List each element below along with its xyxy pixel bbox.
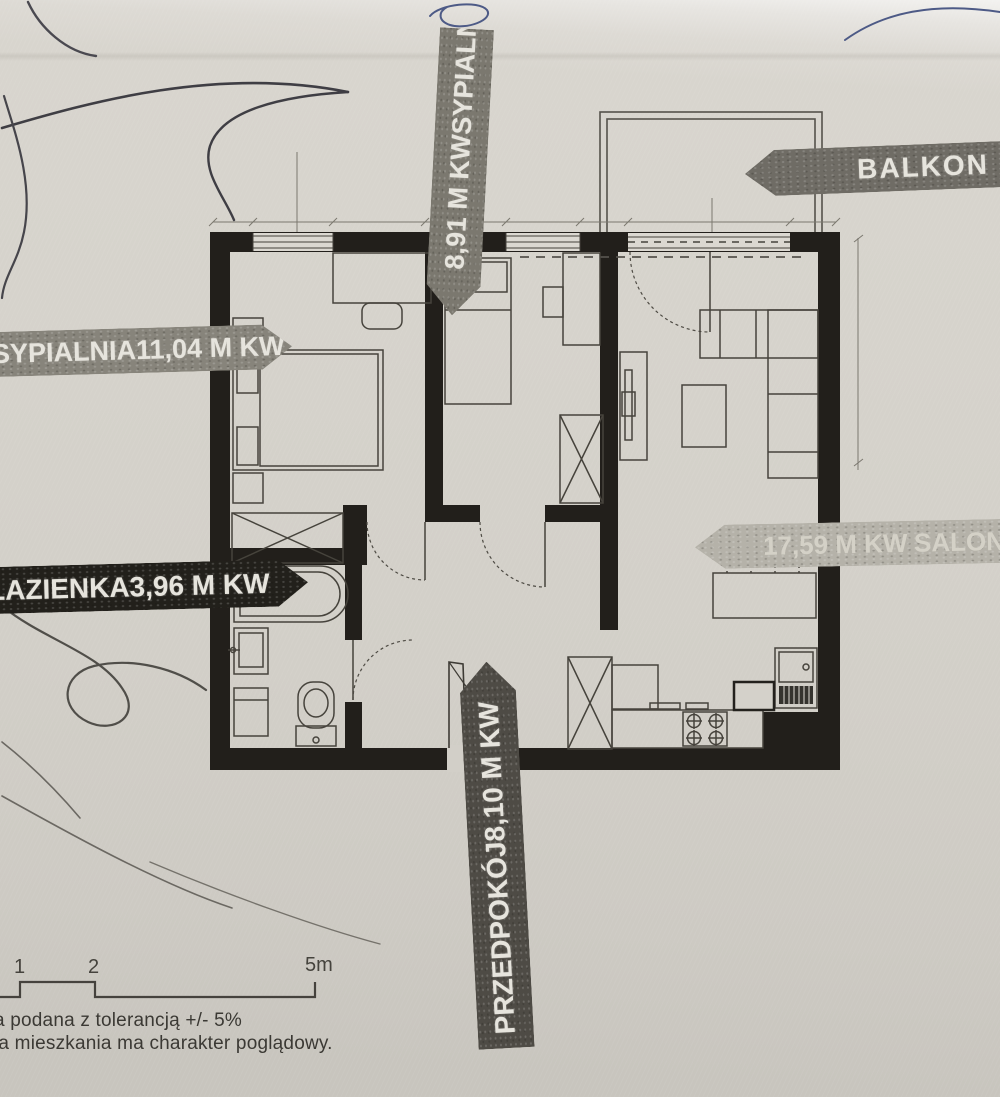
scanned-floor-plan-photo: SYPIALNIA 11,04 M KW ŁAZIENKA 3,96 M KW … [0,0,1000,1097]
bedroom-left-furniture [232,253,431,563]
window-bedroom-right [506,233,580,251]
scale-bar [0,982,315,997]
room-label: ŁAZIENKA [0,571,130,607]
room-area: 17,59 M KW [763,527,908,561]
room-label: BALKON [857,149,990,186]
scale-tick-2: 2 [88,956,99,979]
scale-tick-1: 1 [14,956,25,979]
banner-bathroom: ŁAZIENKA 3,96 M KW [0,559,309,614]
disclaimer-note: ja mieszkania ma charakter poglądowy. [0,1033,333,1055]
window-bedroom-left [253,233,333,251]
room-label: SYPIALNIA [0,335,136,370]
room-label: SALON [914,525,1000,558]
balcony-door-opening [628,233,790,251]
furniture [228,253,818,749]
dimension-lines [209,152,863,470]
room-label: PRZEDPOKÓJ [480,841,522,1035]
tolerance-note: a podana z tolerancją +/- 5% [0,1010,242,1032]
room-area: 11,04 M KW [136,331,285,366]
room-area: 3,96 M KW [129,567,270,603]
door-swings [353,252,710,700]
room-area: 8,10 M KW [472,701,511,843]
banner-bedroom-left: SYPIALNIA 11,04 M KW [0,324,293,378]
banner-living-room: 17,59 M KW SALON [695,519,1000,570]
scale-tick-5m: 5m [305,954,333,977]
room-area: 8,91 M KW [439,134,477,270]
